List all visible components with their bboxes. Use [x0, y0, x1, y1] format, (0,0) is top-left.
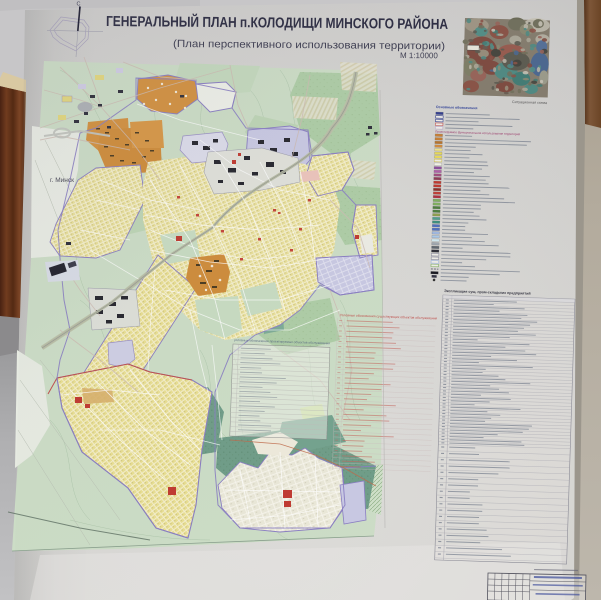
svg-text:С: С — [77, 2, 81, 8]
